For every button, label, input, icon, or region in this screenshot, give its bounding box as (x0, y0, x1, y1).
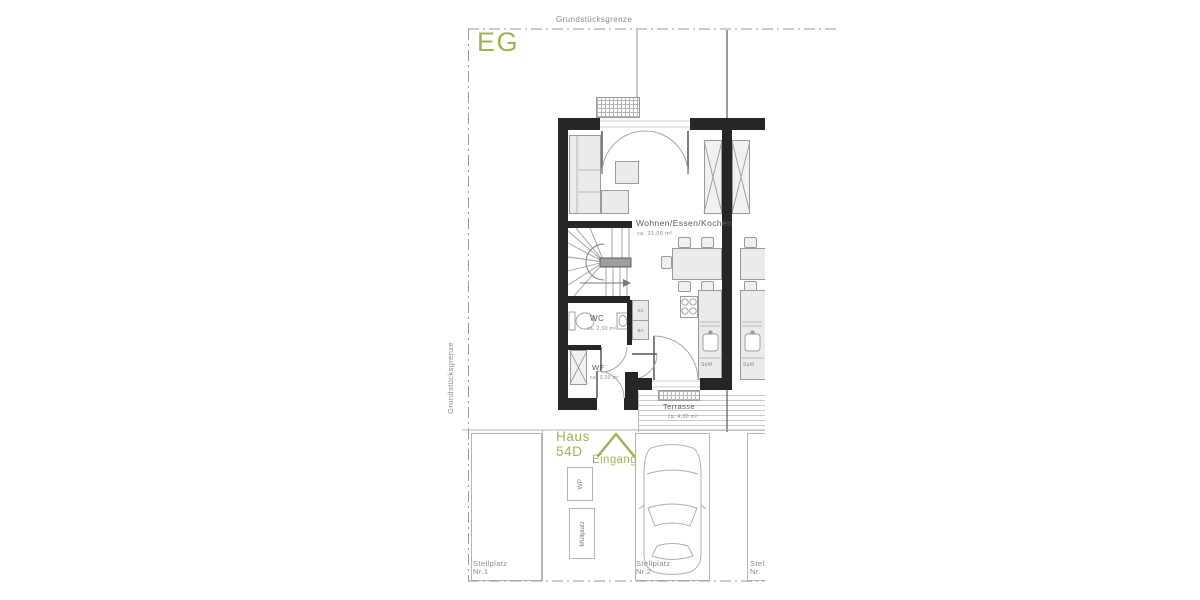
parking-label-2: Stellplatz Nr.2 (636, 560, 670, 577)
cooktop-icon (682, 299, 696, 314)
wall-bottom-wf-left (558, 398, 597, 410)
parking-label-3-clip: Stellplatz Nr. (750, 560, 765, 582)
boundary-label-left: Grundstücksgrenze (447, 342, 455, 414)
parking-label-1-line2: Nr.1 (473, 568, 507, 576)
wall-wc-hall (568, 345, 601, 350)
sofa-cushion-lines (577, 136, 600, 213)
room-label-living: Wohnen/Essen/Kochen (636, 219, 732, 228)
entrance-chevron-icon (598, 434, 634, 456)
car-icon (639, 445, 706, 575)
room-label-wf: WF (592, 364, 604, 372)
wall-bottom-living-right (700, 378, 722, 390)
wall-stair-wc (568, 296, 630, 303)
room-label-wc: WC (590, 315, 604, 324)
wall-bottom-living-left (630, 378, 652, 390)
wall-party (722, 118, 732, 390)
entrance-label: Eingang (592, 454, 637, 467)
room-area-wc: ca. 2,00 m² (587, 327, 616, 333)
parking-label-3: Stellplatz Nr. (750, 560, 765, 577)
floor-label: EG (477, 28, 519, 58)
door-french-double (602, 131, 688, 174)
wall-left-exterior (558, 118, 568, 410)
house-label-line2: 54D (556, 445, 590, 460)
parking-label-2-line2: Nr.2 (636, 568, 670, 576)
wall-top-neighbor (732, 118, 765, 130)
dishwasher-label: SpM (701, 363, 712, 369)
parking-lines (462, 430, 765, 581)
window-sills (600, 121, 700, 387)
parking-label-1: Stellplatz Nr.1 (473, 560, 507, 577)
floorplan-canvas: WP Müllplatz KS BA (0, 0, 1200, 600)
wall-bottom-wf-right (624, 398, 638, 410)
staircase (568, 228, 631, 296)
parking-label-3-line2: Nr. (750, 568, 765, 576)
room-label-terrace: Terrasse (663, 403, 695, 411)
house-label-line1: Haus (556, 430, 590, 445)
wall-living-stair (568, 221, 632, 228)
door-wc (601, 347, 627, 372)
boundary-label-top: Grundstücksgrenze (556, 16, 632, 25)
room-area-wf: ca. 3,00 m² (590, 376, 619, 382)
dishwasher-label-neighbor: SpM (743, 363, 754, 369)
door-terrace (654, 336, 698, 380)
house-label: Haus 54D (556, 430, 590, 460)
wall-wc-east (627, 300, 632, 345)
wall-top-right (690, 118, 722, 130)
room-area-terrace: ca. 4,00 m² (668, 415, 697, 421)
room-area-living: ca. 31,00 m² (637, 231, 672, 237)
